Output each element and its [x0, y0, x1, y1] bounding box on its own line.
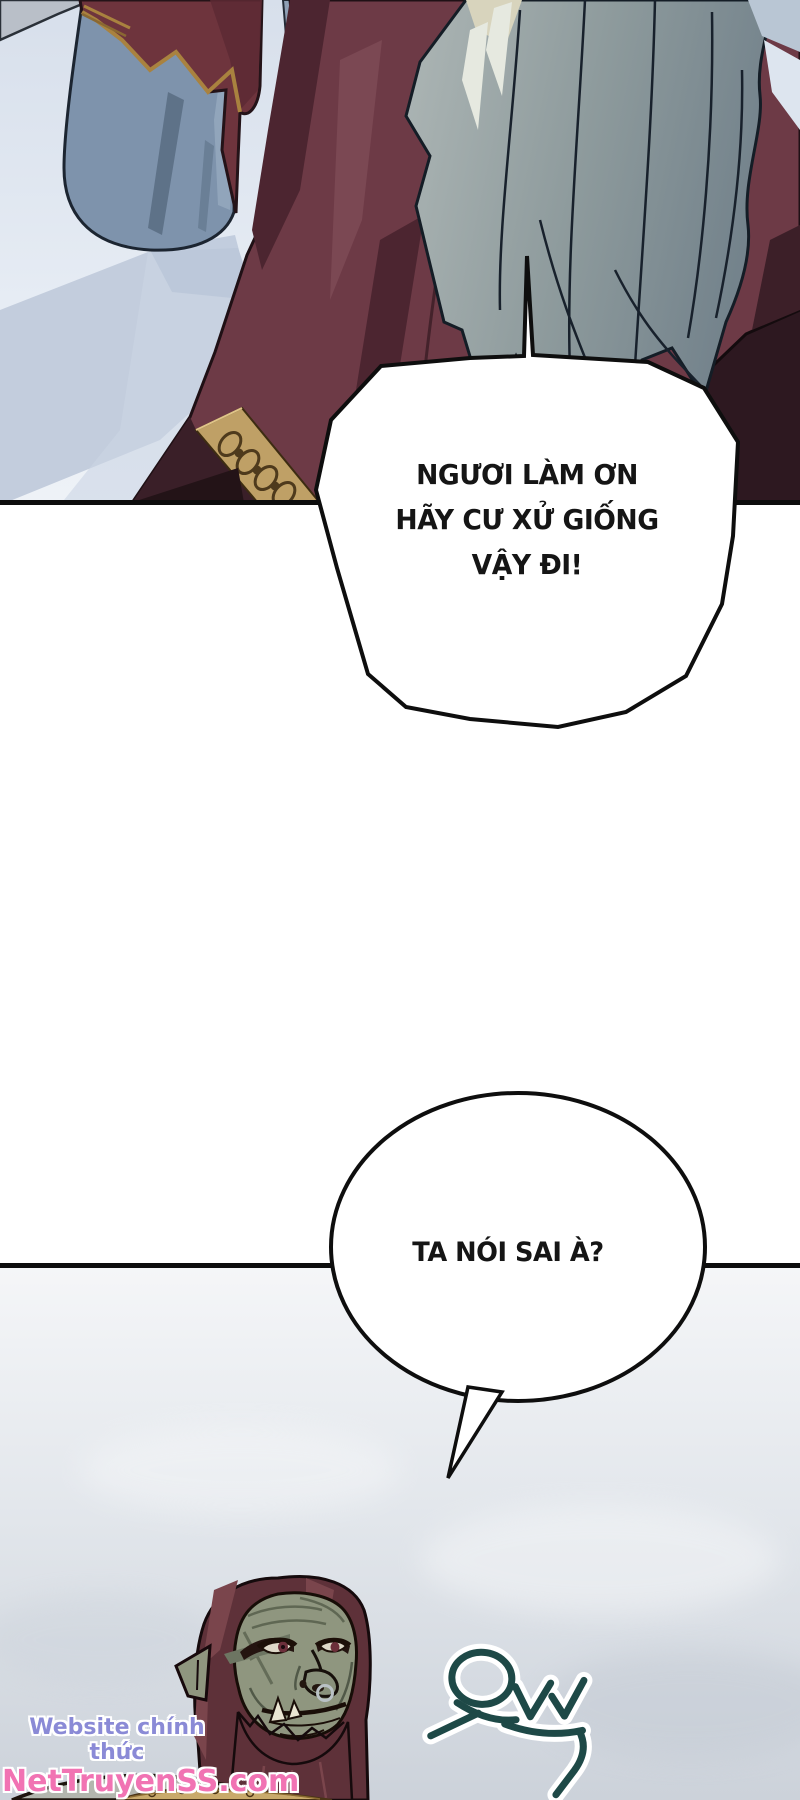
bubble-line: VẬY ĐI! — [330, 542, 723, 587]
watermark-line-2: NetTruyenSS.com — [2, 1765, 232, 1799]
comic-page: NGƯƠI LÀM ƠN HÃY CƯ XỬ GIỐNG VẬY ĐI! TA … — [0, 0, 800, 1800]
bubble-2-tail — [448, 1387, 502, 1478]
acolyte-figure — [64, 0, 262, 250]
site-watermark: Website chính thức NetTruyenSS.com — [2, 1716, 232, 1799]
bubble-line: TA NÓI SAI À? — [366, 1237, 651, 1269]
speech-bubble-2 — [320, 1080, 720, 1490]
bubble-line: NGƯƠI LÀM ƠN — [330, 452, 723, 497]
speech-bubble-2-text: TA NÓI SAI À? — [366, 1237, 651, 1269]
watermark-line-1: Website chính thức — [2, 1716, 232, 1765]
ear-line — [197, 1660, 198, 1690]
speech-bubble-1-text: NGƯƠI LÀM ƠN HÃY CƯ XỬ GIỐNG VẬY ĐI! — [330, 452, 723, 587]
bubble-line: HÃY CƯ XỬ GIỐNG — [330, 497, 723, 542]
